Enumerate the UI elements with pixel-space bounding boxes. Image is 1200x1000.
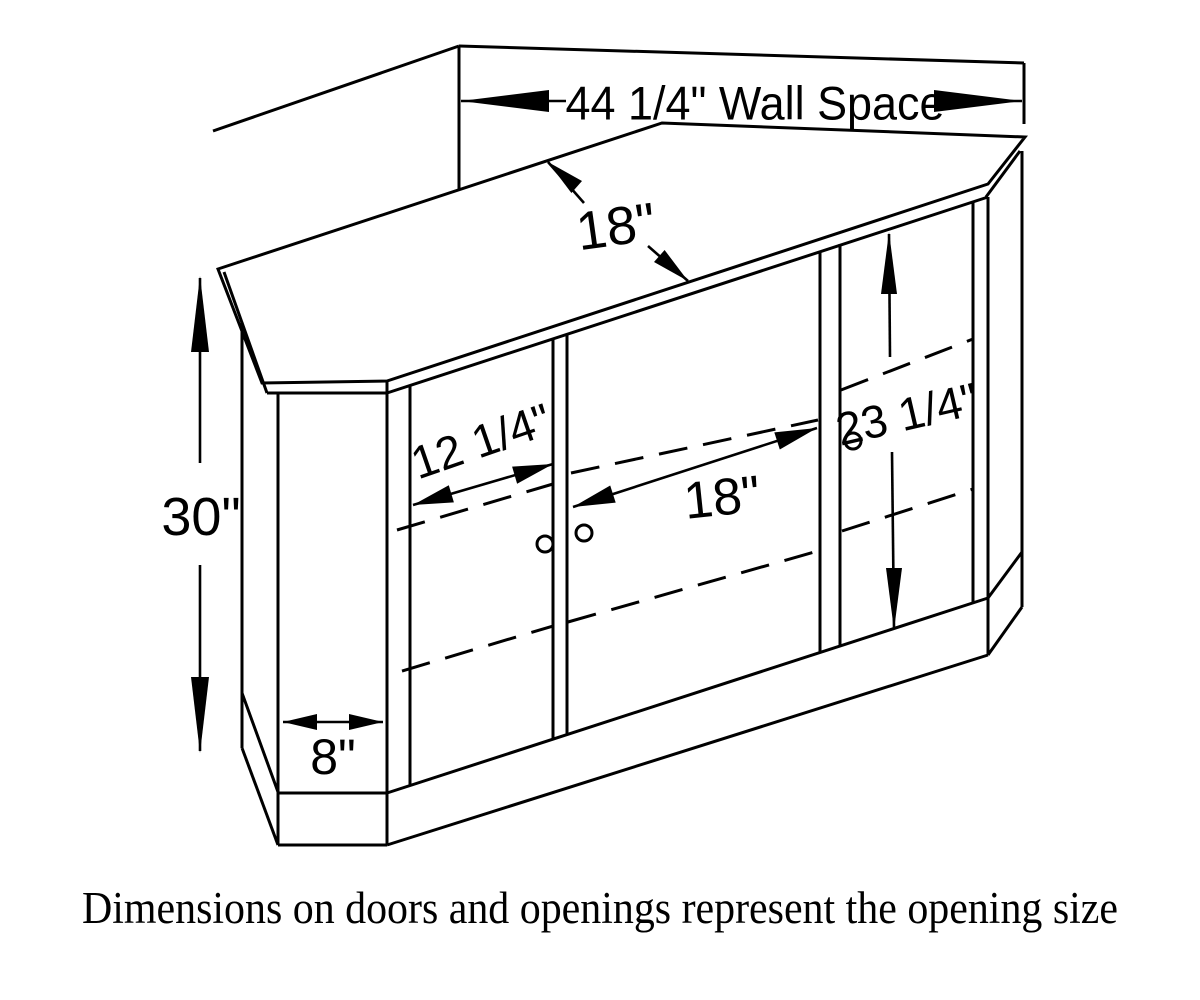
- wall-space-label: 44 1/4" Wall Space: [566, 77, 945, 130]
- right-arrow-icon: [934, 90, 1022, 112]
- left-arrow-icon: [461, 90, 549, 112]
- dim-height: 30": [161, 276, 240, 753]
- front-plinth-top: [387, 598, 988, 793]
- right-opening-lower-hidden-line: [842, 489, 973, 531]
- left-arrow-icon: [283, 714, 317, 730]
- left-door-opening-label: 12 1/4": [404, 393, 557, 489]
- up-arrow-icon: [191, 276, 209, 352]
- center-door-knob: [576, 525, 592, 541]
- top-depth-label: 18": [573, 192, 660, 262]
- diagram-canvas: 44 1/4" Wall Space 18" 30" 12 1/4" 18" 2: [0, 0, 1200, 1000]
- left-arrow-icon: [573, 486, 616, 508]
- caption: Dimensions on doors and openings represe…: [82, 883, 1118, 933]
- cabinet-body: [242, 151, 1022, 845]
- front-floor-edge: [387, 655, 988, 845]
- side-panel-width-label: 8": [310, 729, 356, 785]
- center-door-lower-hidden-line: [568, 551, 818, 622]
- dim-top-depth: 18": [548, 162, 688, 281]
- cabinet-height-label: 30": [161, 487, 240, 547]
- left-door-lower-hidden-line: [402, 626, 553, 671]
- cabinet-dimension-diagram: 44 1/4" Wall Space 18" 30" 12 1/4" 18" 2: [0, 0, 1200, 1000]
- right-arrow-icon: [774, 428, 817, 450]
- cabinet-top: [218, 123, 1025, 393]
- dim-side-panel: 8": [283, 714, 383, 785]
- top-left-bevel-inner: [224, 272, 267, 393]
- center-door-opening-label: 18": [681, 465, 763, 531]
- dim-right-opening: 23 1/4": [831, 232, 983, 630]
- dim-center-door: 18": [573, 428, 817, 531]
- top-right-bevel-inner: [986, 151, 1020, 197]
- dim-wall-space: 44 1/4" Wall Space: [461, 77, 1022, 130]
- wall-back-top-edge: [459, 46, 1024, 63]
- up-left-arrow-icon: [548, 162, 582, 193]
- up-arrow-icon: [881, 232, 897, 294]
- right-arrow-icon: [512, 464, 553, 484]
- left-side-floor-edge: [242, 748, 278, 845]
- down-arrow-icon: [191, 677, 209, 753]
- right-arrow-icon: [349, 714, 383, 730]
- left-side-plinth-top: [242, 693, 278, 792]
- wall-left-top-edge: [213, 46, 459, 131]
- top-band-front-bottom: [387, 197, 988, 393]
- left-arrow-icon: [413, 485, 454, 505]
- cabinet-base: [242, 552, 1022, 845]
- left-door-knob: [537, 536, 553, 552]
- right-side-plinth-top: [988, 552, 1022, 598]
- left-door-hidden-line: [397, 484, 553, 530]
- right-side-floor-edge: [988, 607, 1022, 655]
- down-arrow-icon: [886, 568, 902, 630]
